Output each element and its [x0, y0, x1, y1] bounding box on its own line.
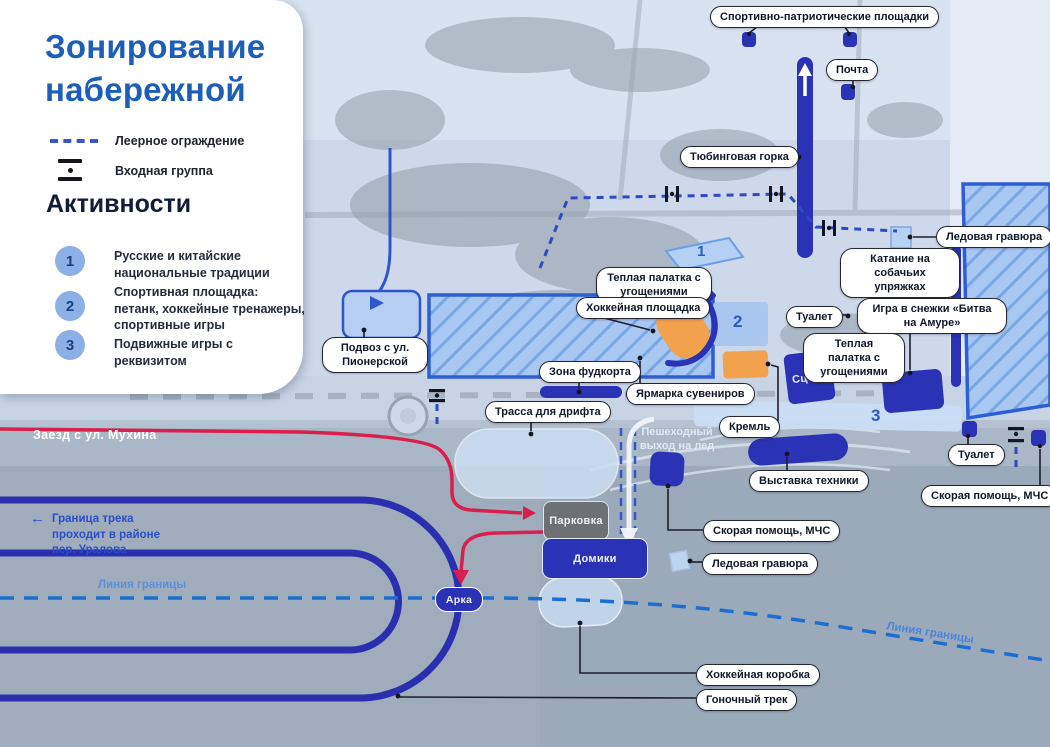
label-tubing: Тюбинговая горка	[680, 146, 799, 168]
activities-title: Активности	[46, 190, 191, 219]
mukhina-street-label: Заезд с ул. Мухина	[33, 428, 157, 442]
label-race-track: Гоночный трек	[696, 689, 797, 711]
entrance-group-icon	[58, 159, 82, 181]
zone-2-number: 2	[733, 312, 742, 332]
label-podvoz: Подвоз с ул. Пионерской	[322, 337, 428, 373]
label-warm-tent-right: Теплая палатка с угощениями	[803, 333, 905, 383]
drift-track-pad	[455, 429, 618, 498]
label-snowball: Игра в снежки «Битва на Амуре»	[857, 298, 1007, 334]
label-sport-patriotic: Спортивно-патриотические площадки	[710, 6, 939, 28]
track-note-arrow-icon: ←	[30, 510, 45, 527]
entrance-legend-label: Входная группа	[115, 163, 213, 179]
label-ice-engraving-bottom: Ледовая гравюра	[702, 553, 818, 575]
label-foodcourt: Зона фудкорта	[539, 361, 641, 383]
label-ice-engraving-top: Ледовая гравюра	[936, 226, 1050, 248]
embankment-zoning-map: Зонирование набережной Леерное ограждени…	[0, 0, 1050, 747]
zone-3-number: 3	[871, 406, 880, 426]
label-kremlin: Кремль	[719, 416, 780, 438]
marker-ambulance-left	[649, 451, 685, 487]
track-boundary-note: Граница трека проходит в районе пер. Ура…	[52, 512, 170, 559]
activity-1-label: Русские и китайские национальные традици…	[114, 248, 306, 281]
marker-ambulance-right	[1031, 430, 1046, 446]
label-ambulance-right: Скорая помощь, МЧС	[921, 485, 1050, 507]
label-post: Почта	[826, 59, 878, 81]
kremlin-area	[723, 350, 769, 379]
activity-2-badge: 2	[55, 291, 85, 321]
pedestrian-exit-label: Пешеходный выход на лед	[636, 426, 718, 454]
label-ambulance-left: Скорая помощь, МЧС	[703, 520, 840, 542]
houses-box: Домики	[542, 538, 648, 579]
podvoz-area	[343, 291, 420, 338]
zone-1-number: 1	[697, 243, 705, 260]
legend-panel: Зонирование набережной Леерное ограждени…	[0, 0, 303, 394]
label-tech-expo: Выставка техники	[749, 470, 869, 492]
label-souvenir-fair: Ярмарка сувениров	[626, 383, 755, 405]
activity-3-label: Подвижные игры с реквизитом	[114, 336, 306, 369]
activity-3-badge: 3	[55, 330, 85, 360]
label-toilet-top: Туалет	[786, 306, 843, 328]
fence-line-swatch	[50, 139, 98, 143]
page-title: Зонирование набережной	[45, 26, 285, 112]
label-toilet-right: Туалет	[948, 444, 1005, 466]
ice-engraving-bottom-area	[670, 551, 690, 572]
label-drift-track: Трасса для дрифта	[485, 401, 611, 423]
activity-1-badge: 1	[55, 246, 85, 276]
arch-box: Арка	[435, 587, 483, 612]
activity-2-label: Спортивная площадка: петанк, хоккейные т…	[114, 284, 306, 334]
fence-legend-label: Леерное ограждение	[115, 133, 244, 149]
label-hockey-box: Хоккейная коробка	[696, 664, 820, 686]
label-dog-sledding: Катание на собачьих упряжках	[840, 248, 960, 298]
parking-box: Парковка	[543, 501, 609, 540]
label-hockey-court: Хоккейная площадка	[576, 297, 710, 319]
boundary-line-label-left: Линия границы	[98, 579, 186, 591]
